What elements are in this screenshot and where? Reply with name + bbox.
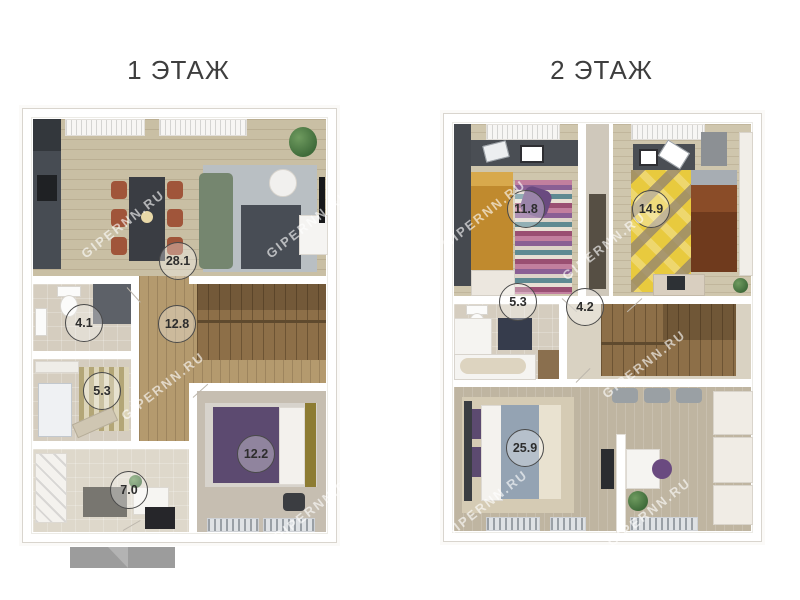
dining-chair <box>111 181 127 199</box>
tv <box>601 449 614 489</box>
wardrobe <box>35 453 67 523</box>
dining-chair <box>167 209 183 227</box>
wardrobe-white <box>739 132 753 276</box>
stair-rail <box>601 342 671 345</box>
kitchen-fridge <box>33 119 61 151</box>
stair-rail <box>197 320 326 323</box>
washing-machine <box>498 318 532 350</box>
pouf <box>283 493 305 511</box>
bed-pillows <box>279 407 305 485</box>
sewing-machine <box>667 276 685 290</box>
armchair-gray <box>644 388 670 403</box>
armchair-gray <box>676 388 702 403</box>
coat-rack <box>589 194 606 289</box>
vanity-counter <box>454 318 492 356</box>
boiler <box>38 383 72 437</box>
area-badge: 4.2 <box>566 288 604 326</box>
bed-pillow <box>691 170 737 185</box>
armchair-gray <box>612 388 638 403</box>
table-bowl <box>141 211 153 223</box>
window-curtain <box>159 119 247 136</box>
bench <box>145 507 175 529</box>
headboard <box>464 401 472 501</box>
bed-pillows <box>481 405 503 501</box>
window-radiator <box>630 517 698 531</box>
room-master <box>454 387 751 531</box>
plant <box>733 278 748 293</box>
window-curtain <box>65 119 145 136</box>
tv <box>319 177 325 223</box>
wardrobe-unit <box>713 391 753 435</box>
wall-shelf <box>35 361 79 373</box>
cabinet-brown <box>538 350 559 379</box>
area-badge: 12.8 <box>158 305 196 343</box>
area-badge: 7.0 <box>110 471 148 509</box>
floor1-title: 1 ЭТАЖ <box>22 55 335 86</box>
window-radiator <box>207 518 259 532</box>
area-badge: 25.9 <box>506 429 544 467</box>
area-badge: 14.9 <box>632 190 670 228</box>
closet-niche <box>586 124 609 296</box>
floor2-title: 2 ЭТАЖ <box>443 55 760 86</box>
ottoman <box>241 205 301 269</box>
pillow-purple <box>472 447 481 477</box>
wardrobe-unit <box>713 485 753 525</box>
area-badge: 5.3 <box>499 283 537 321</box>
area-badge: 4.1 <box>65 304 103 342</box>
window-radiator <box>550 517 586 531</box>
bed-pillow <box>471 172 513 186</box>
plant <box>628 491 648 511</box>
bed-blanket <box>691 212 737 272</box>
sink <box>35 308 47 336</box>
window-curtain <box>631 124 705 140</box>
cabinet-gray <box>701 132 727 166</box>
staircase-upper-flight <box>663 304 736 340</box>
hall-corridor <box>139 383 189 441</box>
area-badge: 12.2 <box>237 435 275 473</box>
dining-chair <box>111 209 127 227</box>
chair-purple <box>652 459 672 479</box>
headboard <box>305 403 316 487</box>
plant <box>289 127 317 157</box>
area-badge: 28.1 <box>159 242 197 280</box>
window-radiator <box>263 518 315 532</box>
floor1-plan: 28.1 4.1 12.8 5.3 7.0 12.2 GIPERNN.RU GI… <box>22 108 337 543</box>
window-curtain <box>486 124 560 140</box>
bathtub-inner <box>460 358 526 374</box>
dining-chair <box>167 181 183 199</box>
area-badge: 11.8 <box>507 190 545 228</box>
porch-fold <box>108 547 128 568</box>
monitor <box>639 149 658 166</box>
divider-wall <box>616 434 626 533</box>
monitor <box>520 145 544 163</box>
floor2-plan: 11.8 14.9 5.3 4.2 25.9 GIPERNN.RU GIPERN… <box>443 113 762 542</box>
porch-steps <box>70 547 175 568</box>
wardrobe-dark <box>454 124 471 286</box>
sofa <box>199 173 233 269</box>
staircase-upper-flight <box>197 284 326 310</box>
window-radiator <box>486 517 540 531</box>
dining-chair <box>111 237 127 255</box>
floorplan-page: { "page": { "background": "#ffffff", "wa… <box>0 0 800 600</box>
pillow-purple <box>472 409 481 439</box>
side-table <box>269 169 297 197</box>
wardrobe-unit <box>713 437 753 483</box>
kitchen-cooktop <box>37 175 57 201</box>
area-badge: 5.3 <box>83 372 121 410</box>
